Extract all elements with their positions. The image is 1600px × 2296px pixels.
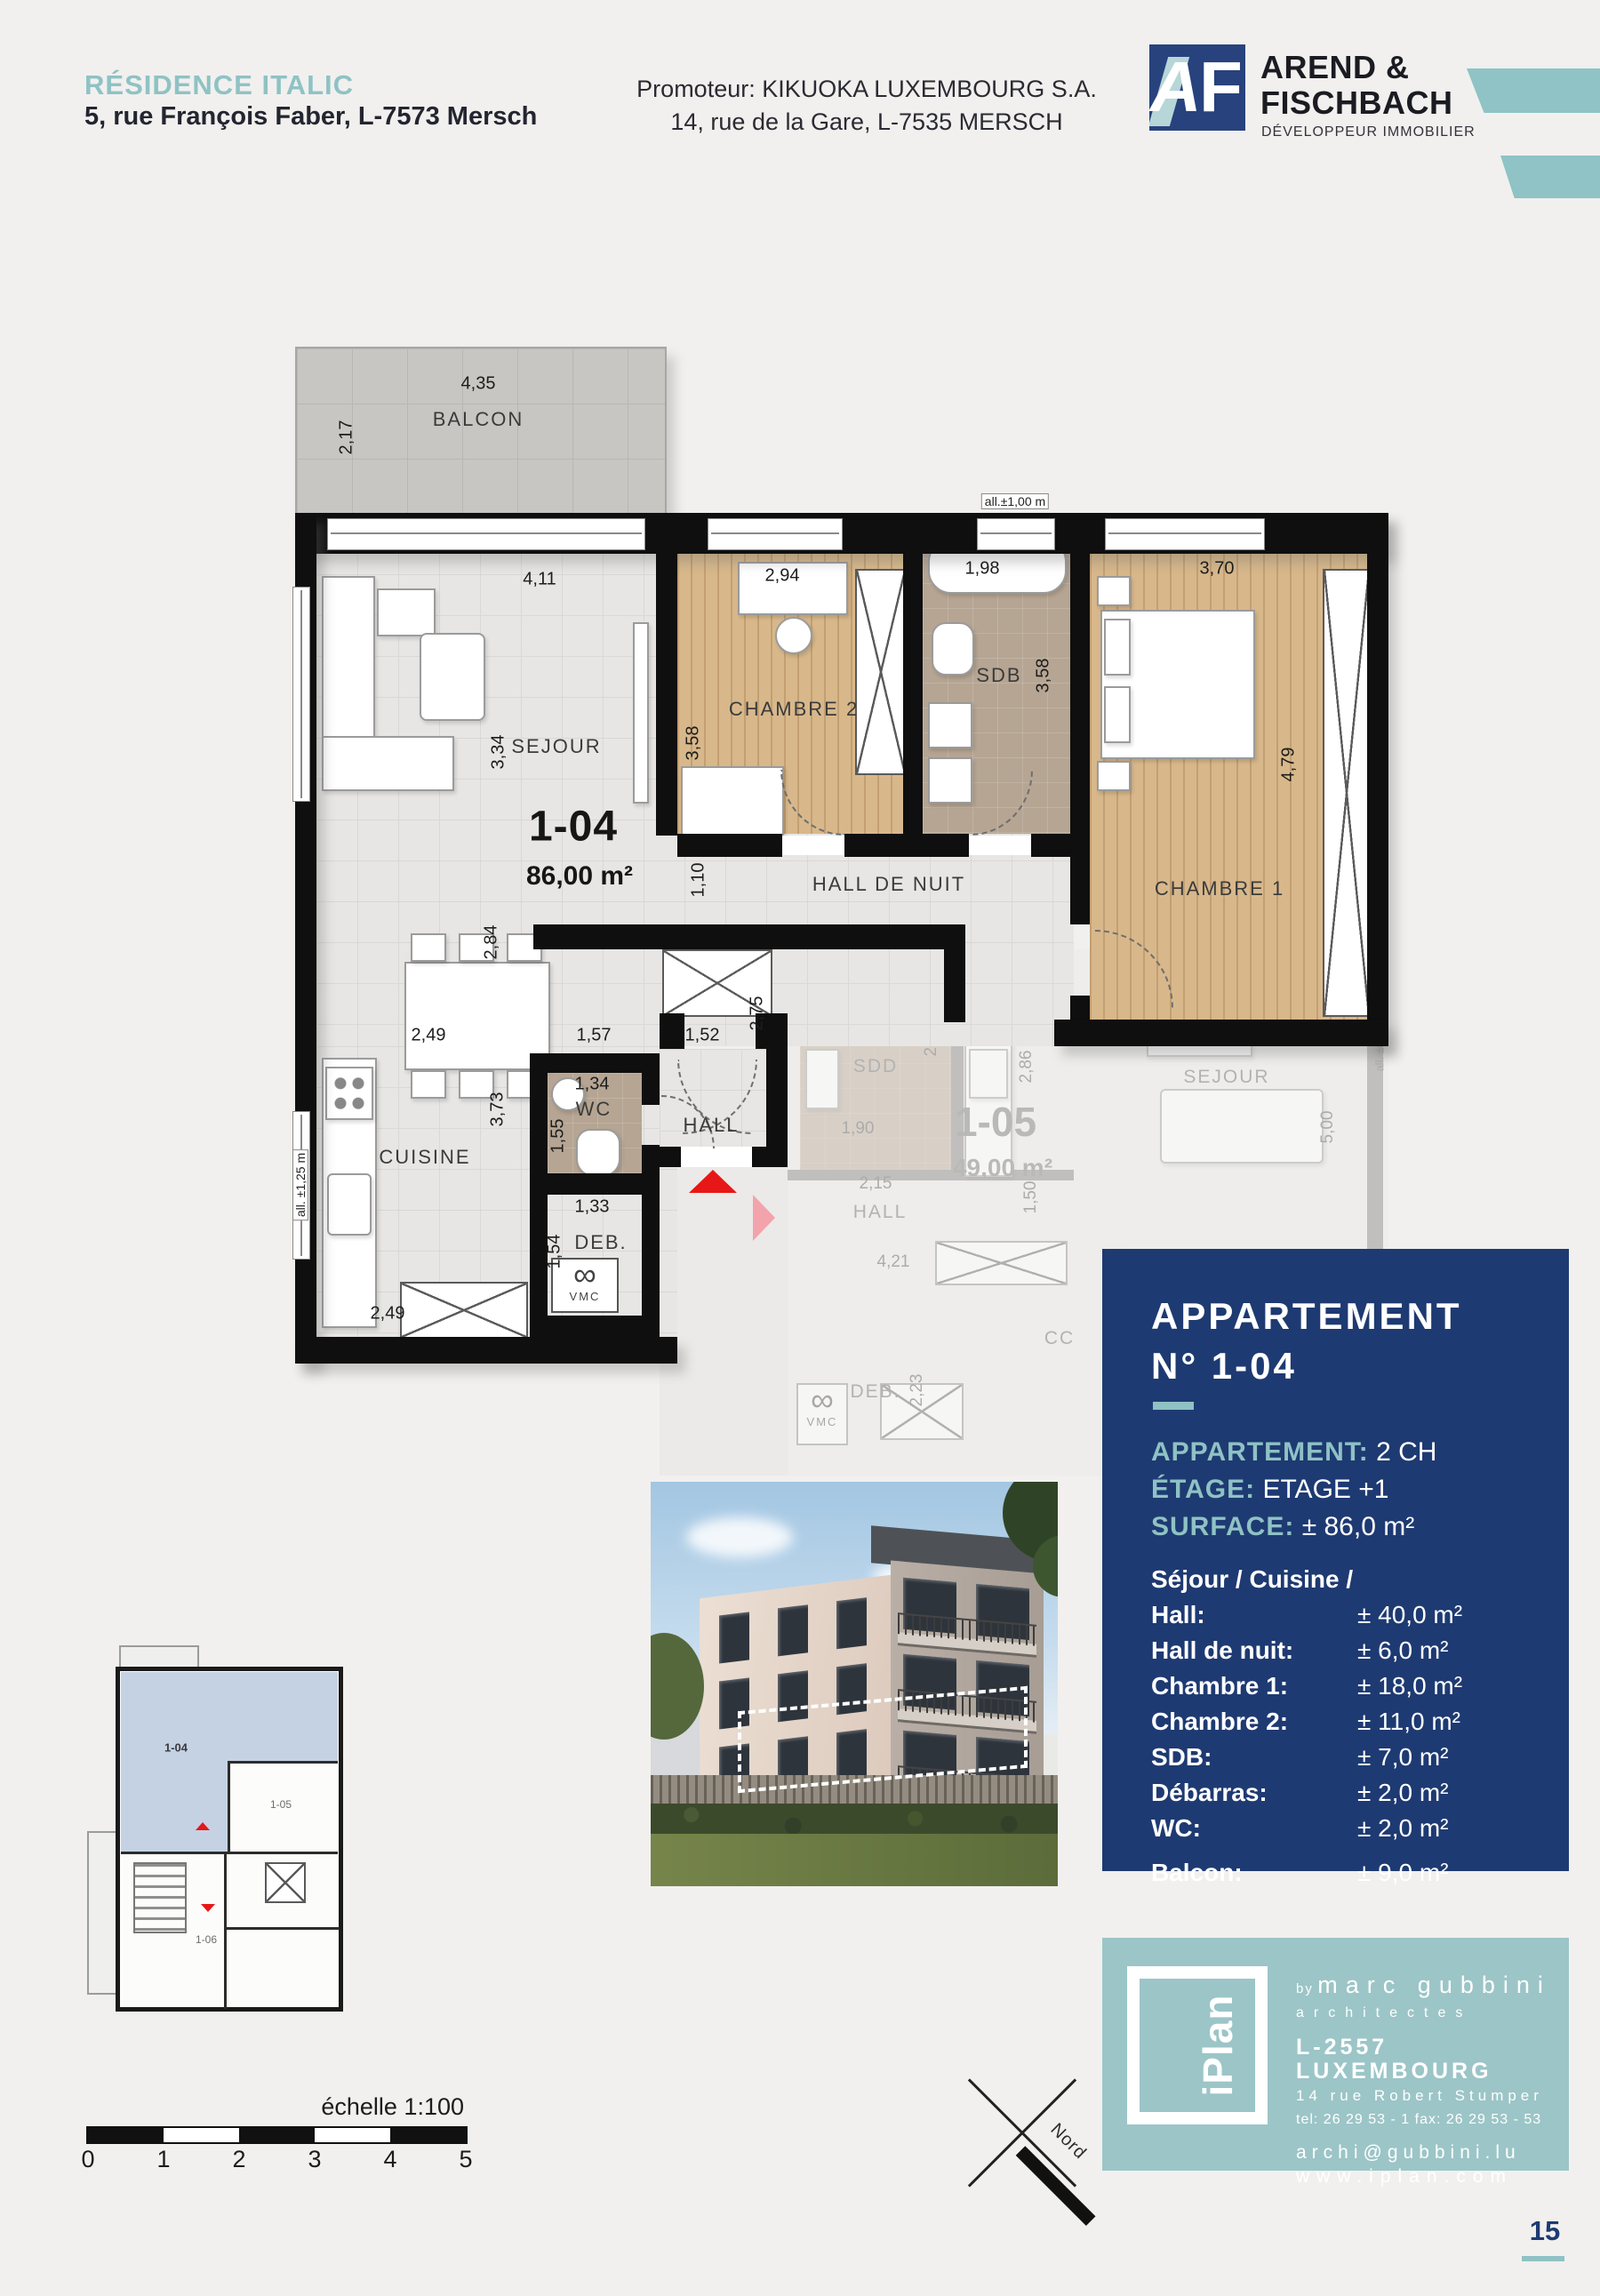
window-sill-label: all. ±1,25 m	[292, 1149, 308, 1220]
closet-kitchen	[400, 1282, 528, 1339]
scale-segment	[164, 2128, 239, 2142]
scale-segment	[88, 2128, 164, 2142]
panel-accent-bar	[1153, 1402, 1194, 1410]
ghost-dim: 5,00	[1318, 1111, 1338, 1144]
balcony-row: Balcon: ± 9,0 m²	[1151, 1859, 1449, 1887]
spec-row: SURFACE: ± 86,0 m²	[1151, 1508, 1436, 1546]
room-label-chambre1: CHAMBRE 1	[1155, 877, 1284, 900]
ghost-sink	[969, 1049, 1008, 1099]
scale-segment	[239, 2128, 315, 2142]
window	[778, 1604, 808, 1656]
furniture-sofa	[322, 736, 454, 791]
unit-area: 86,00 m²	[526, 861, 633, 892]
bedroom2-chair	[775, 617, 812, 654]
room-row: Hall de nuit:± 6,0 m²	[1151, 1633, 1462, 1668]
mini-wall	[228, 1761, 230, 1852]
ghost-sofa	[1160, 1089, 1324, 1164]
dim-label: 1,57	[577, 1026, 612, 1046]
window-sejour	[327, 518, 645, 550]
vmc-label: VMC	[798, 1415, 846, 1428]
room-row: Débarras:± 2,0 m²	[1151, 1775, 1462, 1811]
ghost-dim: 2,23	[908, 1374, 927, 1407]
furniture-chair	[411, 933, 446, 962]
wall	[660, 1147, 681, 1167]
iplan-logo-icon: iPlan	[1127, 1966, 1268, 2124]
closet-bedroom1	[1323, 569, 1371, 1017]
ghost-wardrobe	[935, 1241, 1068, 1285]
mini-wall	[228, 1761, 338, 1764]
entrance-arrow-icon	[689, 1170, 737, 1193]
dim-label: 2,49	[371, 1304, 405, 1324]
brochure-page: RÉSIDENCE ITALIC 5, rue François Faber, …	[0, 0, 1600, 2296]
mini-balcony	[87, 1831, 119, 1995]
mini-unit-104-highlight	[121, 1761, 228, 1852]
furniture-armchair	[377, 588, 436, 636]
room-label-deb: DEB.	[574, 1231, 627, 1254]
ghost-room-label-deb: DEB.	[850, 1381, 900, 1403]
window-sill-label: all.±1,00 m	[981, 493, 1049, 509]
ghost-room-label-cc: CC	[1044, 1328, 1075, 1349]
building-render-photo	[651, 1482, 1058, 1886]
scale-tick: 4	[383, 2146, 396, 2173]
wall	[656, 533, 677, 836]
dim-label: 3,58	[684, 726, 704, 761]
dim-label: 1,55	[548, 1119, 569, 1154]
grass	[651, 1834, 1058, 1886]
unit-id: 1-04	[529, 803, 618, 852]
dim-label: 1,54	[545, 1235, 565, 1269]
architect-contact: by marc gubbini architectes L-2557 LUXEM…	[1296, 1973, 1569, 2188]
room-row: Chambre 1:± 18,0 m²	[1151, 1668, 1462, 1704]
dim-label: 1,10	[689, 863, 709, 898]
window	[719, 1612, 749, 1663]
mini-wall	[224, 1854, 227, 2009]
dim-label: 3,73	[488, 1092, 508, 1127]
furniture-tv-board	[633, 622, 649, 804]
dim-label: 2,75	[748, 996, 768, 1031]
bed-pillow	[1104, 619, 1131, 676]
ghost-basin	[805, 1049, 839, 1109]
wall	[752, 1147, 788, 1167]
room-label-balcon: BALCON	[433, 408, 524, 431]
scale-tick: 5	[459, 2146, 472, 2173]
room-label-chambre2: CHAMBRE 2	[729, 698, 859, 721]
dim-label: 4,35	[461, 374, 496, 395]
cloud	[686, 1517, 793, 1557]
wall	[642, 1145, 660, 1173]
dim-label: 4,11	[523, 570, 556, 590]
ghost-room-label-sdd: SDD	[853, 1056, 898, 1077]
ghost-room-label-hall: HALL	[853, 1202, 908, 1223]
panel-title: APPARTEMENT N° 1-04	[1151, 1292, 1462, 1391]
dim-label: 2,17	[337, 420, 357, 455]
bed-pillow	[1104, 686, 1131, 743]
wall	[677, 834, 782, 857]
ghost-dim: 4,21	[877, 1252, 910, 1272]
furniture-chair	[411, 1070, 446, 1099]
wall	[1367, 513, 1388, 1046]
scale-bar	[86, 2126, 468, 2144]
wall	[530, 1073, 548, 1173]
spec-row: ÉTAGE: ETAGE +1	[1151, 1471, 1436, 1508]
scale-tick: 0	[81, 2146, 94, 2173]
room-label-hall-de-nuit: HALL DE NUIT	[812, 873, 965, 896]
wall	[944, 924, 965, 1022]
wc-toilet	[576, 1129, 620, 1177]
wall	[903, 533, 923, 836]
toilet	[932, 622, 974, 676]
mini-entrance-arrow-icon	[201, 1904, 215, 1912]
scale-segment	[390, 2128, 466, 2142]
dim-label: 3,70	[1200, 559, 1235, 580]
wall	[660, 1013, 684, 1049]
window-sejour-side	[292, 587, 310, 802]
wall	[1031, 834, 1070, 857]
page-number-underline	[1522, 2256, 1564, 2261]
spec-row: APPARTEMENT: 2 CH	[1151, 1434, 1436, 1471]
dim-label: 2,94	[765, 566, 800, 587]
wall	[530, 1053, 660, 1073]
room-label-sejour: SEJOUR	[511, 735, 601, 758]
mini-unit-104-highlight	[121, 1672, 338, 1761]
wall	[295, 1337, 677, 1364]
dim-label: 1,34	[575, 1075, 610, 1095]
mini-label-105: 1-05	[270, 1798, 292, 1811]
room-row: Séjour / Cuisine /	[1151, 1562, 1462, 1597]
bathroom-sink	[928, 757, 972, 804]
wall	[533, 924, 965, 949]
dim-label: 3,58	[1034, 659, 1054, 693]
ghost-dim: 2,86	[1017, 1051, 1036, 1084]
room-label-cuisine: CUISINE	[379, 1146, 470, 1169]
window-bedroom1	[1105, 518, 1265, 550]
nightstand	[1097, 761, 1131, 791]
dim-label: 3,34	[489, 735, 509, 770]
bathroom-sink	[928, 702, 972, 748]
ghost-dim: 2,15	[860, 1174, 892, 1194]
window-bathroom	[977, 518, 1055, 550]
mini-wall	[224, 1927, 340, 1930]
entrance-threshold	[681, 1147, 752, 1167]
scale-segment	[315, 2128, 390, 2142]
dim-label: 2,49	[412, 1026, 446, 1046]
secondary-entrance-arrow-icon	[753, 1195, 775, 1241]
wall	[1070, 533, 1090, 924]
kitchen-sink	[327, 1173, 372, 1236]
wall	[1054, 1020, 1388, 1046]
scale-tick: 2	[232, 2146, 245, 2173]
dim-label: 1,52	[685, 1026, 720, 1046]
mini-staircase	[133, 1862, 187, 1933]
room-row: WC:± 2,0 m²	[1151, 1811, 1462, 1846]
door-threshold	[969, 836, 1031, 855]
door-threshold	[782, 836, 844, 855]
mini-elevator	[265, 1862, 306, 1903]
room-label-wc: WC	[576, 1098, 612, 1121]
wall	[844, 834, 969, 857]
panel-specs: APPARTEMENT: 2 CH ÉTAGE: ETAGE +1 SURFAC…	[1151, 1434, 1436, 1546]
dim-label: 4,79	[1279, 748, 1300, 782]
ghost-unit-area: 49,00 m²	[953, 1154, 1052, 1182]
ghost-vmc-box: ∞ VMC	[796, 1383, 848, 1445]
wall	[1070, 996, 1090, 1020]
wall	[530, 1173, 660, 1195]
vmc-label: VMC	[553, 1290, 617, 1303]
wall	[530, 1316, 660, 1337]
scale-label: échelle 1:100	[267, 2093, 464, 2121]
mini-entrance-arrow-icon	[196, 1822, 210, 1830]
mini-wall	[121, 1852, 338, 1854]
page-number: 15	[1518, 2215, 1572, 2247]
vmc-symbol-icon: ∞	[798, 1385, 846, 1415]
room-label-sdb: SDB	[976, 664, 1021, 687]
furniture-coffee-table	[420, 633, 485, 721]
room-label-hall: HALL	[683, 1114, 739, 1137]
window-bedroom2	[708, 518, 843, 550]
architect-email: archi@gubbini.lu	[1296, 2140, 1569, 2164]
iplan-logo-text: iPlan	[1194, 1995, 1242, 2097]
dim-label: 1,33	[575, 1197, 610, 1218]
window	[836, 1597, 867, 1649]
room-row: Chambre 2:± 11,0 m²	[1151, 1704, 1462, 1740]
mini-label-104: 1-04	[164, 1741, 188, 1755]
architect-website: www.iplan.com	[1296, 2164, 1569, 2188]
scale-tick: 1	[156, 2146, 170, 2173]
mini-label-106: 1-06	[196, 1933, 217, 1946]
wall	[642, 1073, 660, 1105]
bedroom2-bed	[681, 766, 784, 836]
architect-box: iPlan by marc gubbini architectes L-2557…	[1102, 1938, 1569, 2171]
closet-bedroom2	[855, 569, 907, 775]
ghost-unit-id: 1-05	[955, 1098, 1036, 1146]
room-row: SDB:± 7,0 m²	[1151, 1740, 1462, 1775]
scale-tick: 3	[308, 2146, 321, 2173]
nightstand	[1097, 576, 1131, 606]
room-row: Hall:± 40,0 m²	[1151, 1597, 1462, 1633]
furniture-dining-table	[404, 962, 550, 1070]
kitchen-hob	[325, 1067, 373, 1120]
panel-room-list: Séjour / Cuisine / Hall:± 40,0 m² Hall d…	[1151, 1562, 1462, 1846]
ghost-dim: 1,50	[1021, 1181, 1041, 1214]
dim-label: 1,98	[965, 559, 1000, 580]
dim-label: 2,84	[482, 925, 502, 960]
apartment-info-panel: APPARTEMENT N° 1-04 APPARTEMENT: 2 CH ÉT…	[1102, 1249, 1569, 1871]
ghost-dim: 1,90	[842, 1119, 875, 1139]
ghost-room-label-sejour: SEJOUR	[1183, 1067, 1269, 1088]
